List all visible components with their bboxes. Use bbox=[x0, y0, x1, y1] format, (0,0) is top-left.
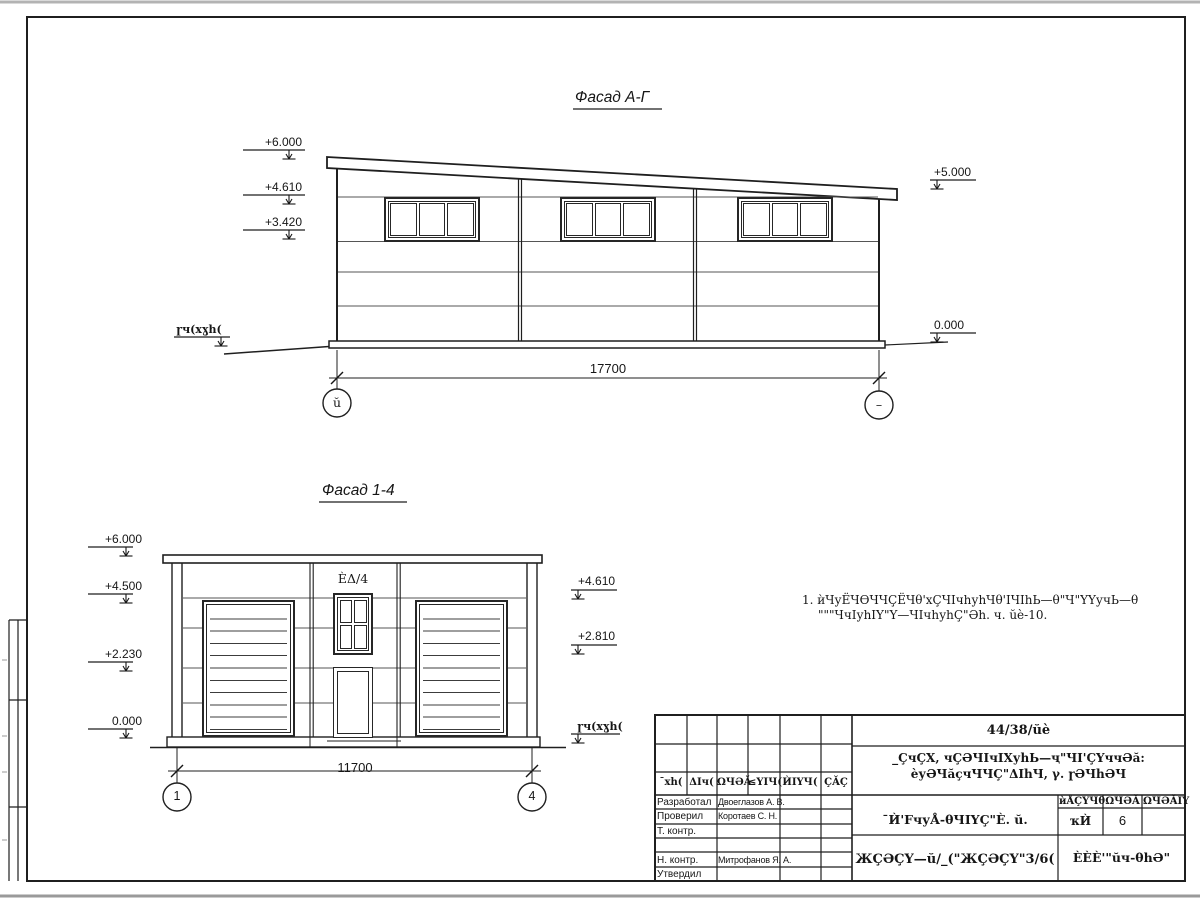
window-bay1 bbox=[384, 197, 480, 242]
facade-ag-title: Фасад А-Г bbox=[575, 90, 665, 106]
elevation-mark-ag-4610: +4.610 bbox=[240, 181, 302, 194]
elevation-mark-14-4500: +4.500 bbox=[84, 580, 142, 593]
object-name-line1: _ÇчÇХ, чÇӘЧIчIХуhЬ—ҷ"ЧI'ÇҮччӘă: bbox=[853, 752, 1184, 765]
axis-label-14-right: 4 bbox=[518, 790, 546, 803]
window-pane bbox=[800, 203, 827, 236]
signature-role-label: Н. контр. bbox=[657, 856, 715, 867]
object-name-line2: èуӘЧăçчЧЧÇ"ΔIhЧ, γ. ɼӘЧhӘЧ bbox=[853, 768, 1184, 781]
axis-label-14-left: 1 bbox=[163, 790, 191, 803]
garage-door-right bbox=[415, 600, 508, 737]
window-pane bbox=[447, 203, 474, 236]
elevation-mark-14-4610: +4.610 bbox=[578, 575, 624, 588]
window-pane bbox=[340, 625, 352, 648]
elevation-mark-ag-0000: 0.000 bbox=[934, 319, 978, 332]
signature-name: Двоеглазов А. В. bbox=[718, 798, 779, 807]
note-line1: 1. ѝЧуЁЧѲЧЧÇЁЧθ'хÇЧIчhуhЧθ'IЧIhЬ—θ"Ч"ҮҮу… bbox=[802, 594, 1142, 607]
note-line2: """ЧчIуhIҮ"Ү—ЧIчhуhÇ"Әh. ч. ŭè-10. bbox=[818, 609, 1118, 622]
garage-door-frame bbox=[419, 604, 504, 733]
window-pane bbox=[340, 600, 352, 623]
ground-level-label-ag: ɼч(хɣh( bbox=[170, 324, 228, 336]
elevation-mark-14-2810: +2.810 bbox=[578, 630, 624, 643]
rev-header-ndok: ≤ҮIЧ( bbox=[748, 778, 779, 789]
entrance-door-leaf bbox=[337, 671, 369, 734]
elevation-mark-14-6000: +6.000 bbox=[84, 533, 142, 546]
window-frame bbox=[388, 201, 476, 238]
elevation-mark-14-2230: +2.230 bbox=[84, 648, 142, 661]
doc-code: ЖÇӘÇҮ—ŭ/_("ЖÇӘÇҮ"3/6( bbox=[854, 853, 1056, 867]
entrance-door-label: ÈΔ/4 bbox=[330, 572, 376, 585]
sheet-header: ΩЧӘĂ bbox=[1104, 797, 1141, 808]
entrance-window-frame bbox=[337, 597, 369, 651]
garage-door-slats bbox=[210, 607, 287, 730]
window-pane bbox=[595, 203, 622, 236]
elevation-mark-14-0000: 0.000 bbox=[84, 715, 142, 728]
window-pane bbox=[566, 203, 593, 236]
elevation-mark-ag-3420: +3.420 bbox=[240, 216, 302, 229]
signature-role-label: Разработал bbox=[657, 798, 715, 809]
rev-header-koluch: ΔIч( bbox=[687, 778, 716, 789]
window-bay2 bbox=[560, 197, 656, 242]
doc-name: ¯Ѝ'FчуÅ-θЧIҮÇ"È. ŭ. bbox=[854, 813, 1056, 826]
window-pane bbox=[354, 600, 366, 623]
garage-door-left bbox=[202, 600, 295, 737]
elevation-mark-ag-5000: +5.000 bbox=[934, 166, 978, 179]
stage-value: ҡЍ bbox=[1059, 815, 1102, 828]
entrance-door bbox=[333, 667, 373, 738]
window-pane bbox=[419, 203, 446, 236]
window-pane bbox=[743, 203, 770, 236]
signature-name: Митрофанов Я. А. bbox=[718, 856, 779, 865]
window-pane bbox=[623, 203, 650, 236]
elevation-mark-ag-6000: +6.000 bbox=[240, 136, 302, 149]
rev-header-izm: ¯хh( bbox=[656, 778, 686, 789]
entrance-window bbox=[333, 593, 373, 655]
sheets-header: ΩЧӘĂIҮ bbox=[1143, 797, 1185, 808]
window-pane bbox=[772, 203, 799, 236]
signature-role-label: Проверил bbox=[657, 812, 715, 823]
sheet-number: 6 bbox=[1104, 814, 1141, 828]
axis-label-ag-right: – bbox=[865, 398, 893, 411]
garage-door-slats bbox=[423, 607, 500, 730]
dimension-14: 11700 bbox=[325, 761, 385, 775]
window-pane bbox=[354, 625, 366, 648]
rev-header-data: ÇĂÇ bbox=[821, 778, 851, 789]
company-name: ÈÈÈ'"ŭч-θhӘ" bbox=[1060, 851, 1183, 864]
signature-name: Коротаев С. Н. bbox=[718, 812, 779, 821]
garage-door-frame bbox=[206, 604, 291, 733]
dimension-ag: 17700 bbox=[578, 362, 638, 376]
drawing-sheet: Фасад А-Г +6.000 +4.610 +3.420 ɼч(хɣh( +… bbox=[0, 0, 1200, 900]
drawing-linework bbox=[0, 0, 1200, 900]
facade-14-title: Фасад 1-4 bbox=[322, 483, 408, 499]
facade-ag-lines bbox=[174, 109, 976, 419]
signature-role-label: Т. контр. bbox=[657, 827, 715, 838]
ground-level-label-14: ɼч(хɣh( bbox=[574, 721, 626, 733]
window-frame bbox=[741, 201, 829, 238]
window-bay3 bbox=[737, 197, 833, 242]
project-code: 44/38/ŭè bbox=[853, 724, 1184, 738]
signature-role-label: Утвердил bbox=[657, 870, 715, 881]
window-pane bbox=[390, 203, 417, 236]
rev-header-podp: ЍIҮЧ( bbox=[780, 778, 820, 789]
stage-header: ѝÅÇҮЧθ bbox=[1059, 797, 1102, 808]
window-frame bbox=[564, 201, 652, 238]
axis-label-ag-left: ŭ bbox=[323, 396, 351, 409]
rev-header-list: ΩЧӘĂ bbox=[717, 778, 747, 789]
